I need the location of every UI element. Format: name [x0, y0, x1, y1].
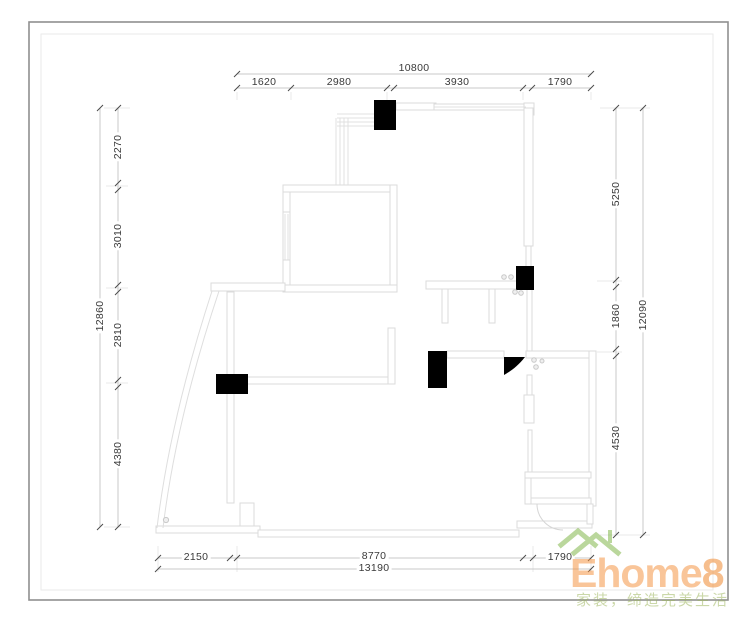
tick-marks [97, 71, 646, 572]
dim-top-seg-4: 1790 [548, 77, 573, 88]
dim-top-seg-3: 3930 [445, 77, 470, 88]
dim-left-seg-2: 3010 [113, 222, 124, 251]
dim-left-total: 12860 [95, 299, 106, 334]
dim-left-seg-4: 4380 [113, 440, 124, 469]
column-center [428, 351, 447, 388]
column-right [516, 266, 534, 290]
dim-right-seg-2: 1860 [611, 302, 622, 331]
dim-bottom-seg-1: 2150 [182, 552, 211, 563]
dim-left-seg-3: 2810 [113, 321, 124, 350]
dim-top-seg-1: 1620 [252, 77, 277, 88]
dim-top-seg-2: 2980 [327, 77, 352, 88]
dim-left-seg-1: 2270 [113, 133, 124, 162]
dim-bottom-total: 13190 [357, 563, 392, 574]
window-lines [285, 107, 526, 260]
dim-right-total: 12090 [638, 298, 649, 333]
floor-plan-sheet: Ehome8 家装，缔造完美生活 [0, 0, 756, 630]
dim-bottom-seg-2: 8770 [360, 551, 389, 562]
dim-right-seg-1: 5250 [611, 180, 622, 209]
dim-right-seg-3: 4530 [611, 424, 622, 453]
column-markers [216, 100, 534, 394]
dim-top-total: 10800 [399, 63, 430, 74]
column-top [374, 100, 396, 130]
dimension-lines [100, 74, 643, 569]
door-wedge [504, 357, 525, 375]
column-left [216, 374, 248, 394]
dim-bottom-seg-3: 1790 [546, 552, 575, 563]
wall-lines [156, 103, 596, 537]
plumbing-circles [163, 275, 544, 523]
curved-wall [157, 291, 219, 528]
